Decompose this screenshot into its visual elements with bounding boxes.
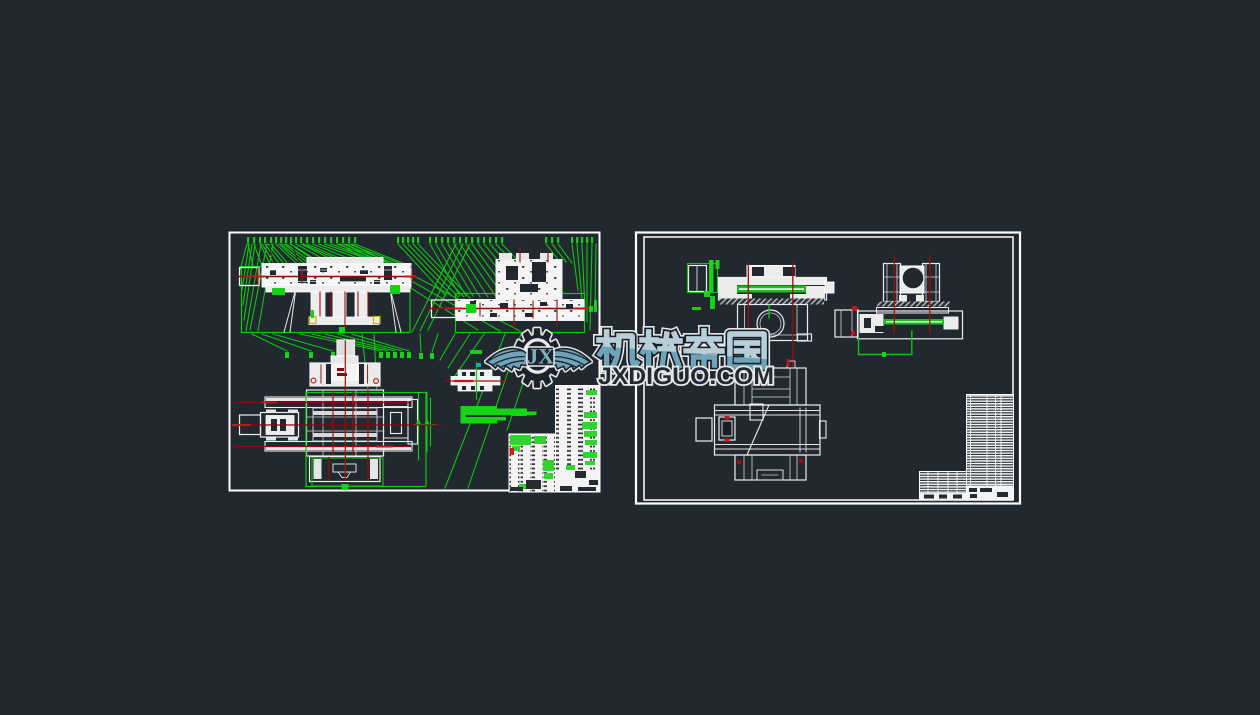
svg-text:JXDIGUO.COM: JXDIGUO.COM (598, 363, 774, 390)
svg-text:JX: JX (527, 344, 554, 369)
